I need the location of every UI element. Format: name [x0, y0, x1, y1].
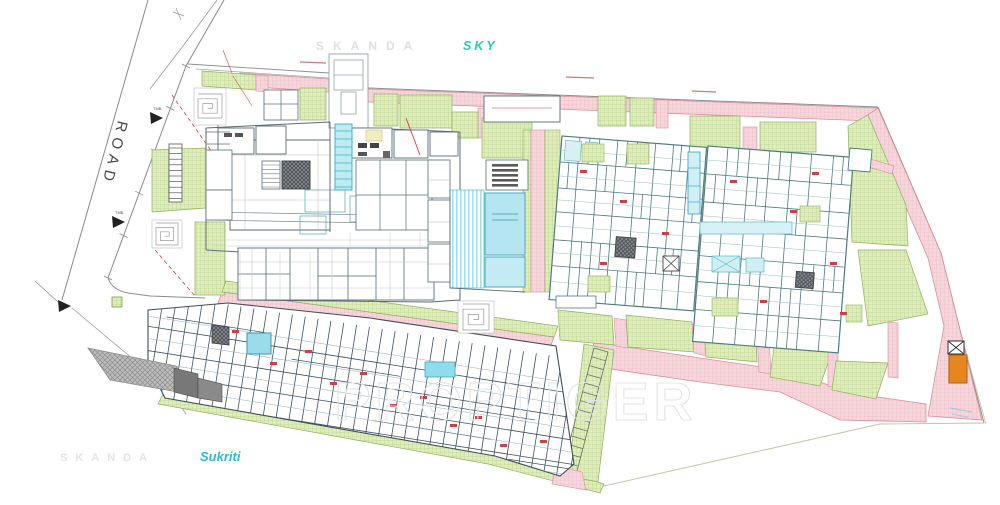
svg-text:TMB: TMB — [153, 106, 162, 111]
svg-text:SKANDA: SKANDA — [316, 39, 421, 53]
svg-text:TMB: TMB — [115, 210, 124, 215]
svg-text:SKY: SKY — [463, 39, 498, 53]
svg-text:PROPTIGER: PROPTIGER — [334, 372, 697, 432]
svg-text:Sukriti: Sukriti — [200, 449, 241, 464]
svg-text:SKANDA: SKANDA — [60, 452, 155, 464]
